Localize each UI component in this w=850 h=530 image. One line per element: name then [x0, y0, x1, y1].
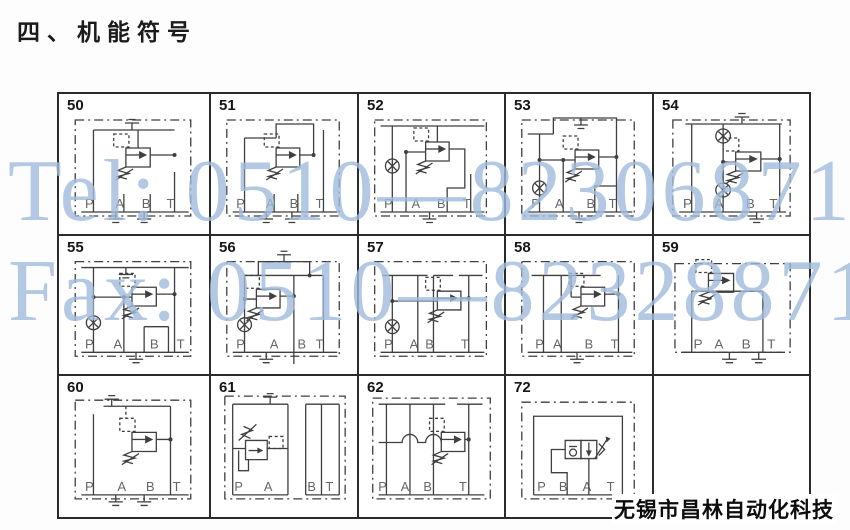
- port-label: T: [769, 196, 777, 211]
- hydraulic-schematic-52: P A B T: [359, 94, 504, 234]
- hydraulic-schematic-59: P A B T: [654, 236, 809, 374]
- port-label: A: [583, 479, 592, 494]
- port-label: A: [714, 337, 723, 352]
- symbol-cell-56: 56 P A B T: [211, 236, 359, 376]
- port-label: T: [325, 479, 333, 494]
- cell-number: 53: [514, 97, 531, 114]
- vent-plug-icon: [125, 120, 139, 131]
- cell-number: 56: [219, 239, 236, 256]
- port-label: B: [297, 336, 306, 351]
- port-label: P: [85, 337, 94, 352]
- symbol-cell-55: 55 P A B T: [59, 236, 211, 376]
- plug-icon: [570, 352, 584, 362]
- symbol-cell-62: 62 P A B T: [359, 376, 506, 517]
- relief-valve-icon: [264, 134, 300, 180]
- port-label: P: [384, 196, 392, 211]
- relief-valve-icon: [414, 128, 449, 174]
- port-label: P: [683, 196, 692, 211]
- cell-number: 52: [367, 97, 384, 114]
- port-label: B: [742, 337, 751, 352]
- hydraulic-schematic-54: P A B T: [654, 94, 809, 234]
- port-label: A: [553, 336, 562, 351]
- relief-valve-icon: [563, 136, 599, 182]
- symbol-cell-52: 52 P A B T: [359, 94, 506, 236]
- cell-number: 72: [514, 379, 531, 396]
- port-label: B: [150, 337, 159, 352]
- relief-valve-icon: [696, 260, 734, 305]
- cell-number: 59: [662, 239, 679, 256]
- symbol-cell-58: 58 P A B T: [506, 236, 654, 376]
- hydraulic-schematic-55: P A B T: [59, 236, 209, 374]
- symbol-table: 50 P A B T 51 P A B T: [57, 92, 811, 519]
- port-label: B: [746, 196, 755, 211]
- plug-icon: [423, 212, 437, 223]
- vent-plug-icon: [119, 268, 133, 278]
- port-label: B: [307, 479, 316, 494]
- port-label: B: [587, 196, 596, 211]
- port-label: P: [378, 479, 386, 494]
- vent-plug-icon: [263, 394, 277, 405]
- plug-icon: [285, 212, 299, 223]
- page-title: 四、机能符号: [17, 13, 197, 47]
- port-label: B: [290, 196, 299, 211]
- port-label: T: [177, 337, 185, 352]
- vent-plug-icon: [105, 396, 119, 407]
- port-label: T: [173, 479, 181, 494]
- hydraulic-schematic-61: P A B T: [211, 376, 357, 517]
- port-label: P: [537, 479, 546, 494]
- cell-number: 51: [219, 97, 236, 114]
- cell-number: 62: [367, 379, 384, 396]
- port-label: P: [531, 196, 540, 211]
- symbol-cell-57: 57 P A B T: [359, 236, 506, 376]
- vent-plug-icon: [277, 251, 291, 261]
- port-label: T: [316, 196, 324, 211]
- port-label: P: [234, 479, 243, 494]
- hydraulic-schematic-62: P A B T: [359, 376, 504, 517]
- relief-valve-icon: [120, 418, 156, 464]
- port-label: T: [459, 479, 467, 494]
- port-label: T: [611, 336, 619, 351]
- plug-icon: [109, 495, 123, 506]
- port-label: T: [607, 479, 615, 494]
- port-label: T: [463, 196, 471, 211]
- cell-number: 60: [67, 379, 84, 396]
- vent-plug-icon: [735, 114, 750, 125]
- plug-icon: [137, 495, 151, 506]
- cell-number: 50: [67, 97, 84, 114]
- cell-number: 58: [514, 239, 531, 256]
- plug-icon: [259, 352, 273, 362]
- port-label: P: [693, 337, 702, 352]
- hydraulic-schematic-57: P A B T: [359, 236, 504, 374]
- relief-valve-icon: [430, 418, 465, 464]
- symbol-cell-51: 51 P A B T: [211, 94, 359, 236]
- port-label: B: [146, 479, 155, 494]
- hydraulic-schematic-53: P A B T: [506, 94, 652, 234]
- port-label: T: [461, 336, 469, 351]
- port-label: P: [236, 196, 245, 211]
- port-label: A: [401, 479, 410, 494]
- port-label: B: [425, 336, 433, 351]
- plug-icon: [109, 212, 123, 223]
- cell-number: 55: [67, 239, 84, 256]
- relief-valve-icon: [426, 277, 461, 322]
- port-label: P: [236, 336, 245, 351]
- plug-icon: [751, 352, 766, 362]
- plug-icon: [572, 212, 586, 223]
- symbol-cell-60: 60 P A B T: [59, 376, 211, 517]
- cell-number: 57: [367, 239, 384, 256]
- port-label: T: [166, 196, 174, 211]
- relief-valve-icon: [245, 275, 281, 320]
- port-label: T: [609, 196, 617, 211]
- port-label: A: [115, 196, 124, 211]
- port-label: A: [410, 336, 419, 351]
- plug-icon: [129, 352, 143, 362]
- port-label: B: [142, 196, 151, 211]
- port-label: B: [585, 336, 594, 351]
- hydraulic-schematic-60: P A B T: [59, 376, 209, 517]
- cell-number: 54: [662, 97, 679, 114]
- port-label: A: [117, 479, 126, 494]
- port-label: P: [535, 336, 544, 351]
- hydraulic-schematic-51: P A B T: [211, 94, 357, 234]
- symbol-cell-59: 59 P A B T: [654, 236, 809, 376]
- port-label: A: [270, 336, 279, 351]
- port-label: P: [384, 336, 392, 351]
- port-label: B: [423, 479, 431, 494]
- port-label: A: [412, 196, 421, 211]
- port-label: A: [714, 196, 723, 211]
- symbol-cell-50: 50 P A B T: [59, 94, 211, 236]
- relief-valve-icon: [114, 134, 150, 180]
- port-label: P: [85, 196, 94, 211]
- company-footer: 无锡市昌林自动化科技: [612, 494, 836, 524]
- symbol-cell-53: 53 P A B T: [506, 94, 654, 236]
- relief-valve-icon: [723, 138, 761, 184]
- port-label: A: [113, 337, 122, 352]
- port-label: A: [266, 196, 275, 211]
- hydraulic-schematic-58: P A B T: [506, 236, 652, 374]
- cell-number: 61: [219, 379, 236, 396]
- port-label: A: [264, 479, 273, 494]
- symbol-cell-54: 54 P A B T: [654, 94, 809, 236]
- symbol-cell-61: 61 P A B T: [211, 376, 359, 517]
- port-label: A: [555, 196, 564, 211]
- port-label: B: [437, 196, 445, 211]
- plug-icon: [749, 212, 764, 223]
- plug-icon: [137, 212, 151, 223]
- plug-icon: [259, 212, 273, 223]
- port-label: T: [316, 336, 324, 351]
- hydraulic-schematic-50: P A B T: [59, 94, 209, 234]
- port-label: P: [85, 479, 94, 494]
- hydraulic-schematic-56: P A B T: [211, 236, 357, 374]
- relief-valve-icon: [569, 273, 605, 318]
- port-label: T: [767, 337, 775, 352]
- port-label: B: [559, 479, 568, 494]
- plug-icon: [722, 352, 737, 362]
